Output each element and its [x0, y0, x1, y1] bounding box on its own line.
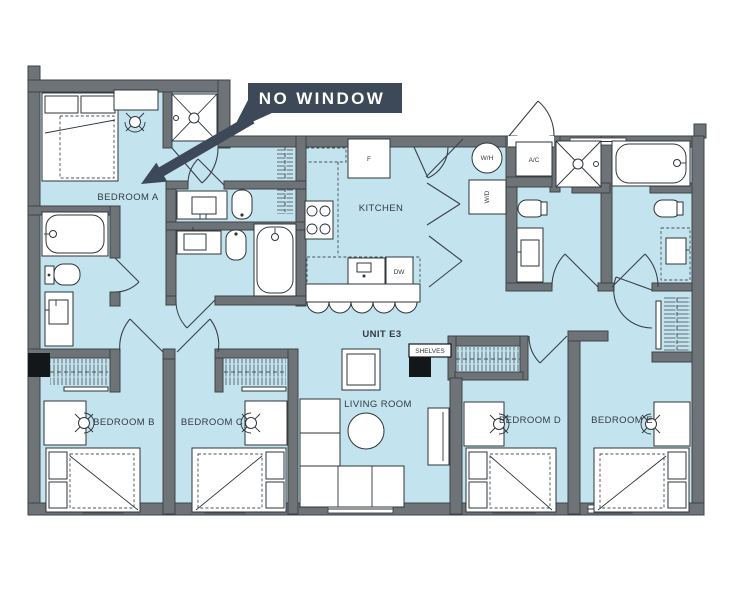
bedroom-a-label: BEDROOM A: [97, 192, 158, 203]
wall-bath-a-east-lower: [110, 292, 120, 306]
wall-bath-d-e-divider: [601, 136, 612, 291]
bed-e: [594, 448, 689, 512]
toilet-mid-lower: [226, 230, 246, 260]
bedroom-c-label: BEDROOM C: [181, 417, 243, 428]
coffee-table: [348, 413, 384, 449]
floor-plan-page: F DW W/H W/D A/C: [0, 0, 740, 592]
wall-closet-c-west: [215, 358, 223, 392]
shelves-label-group: SHELVES: [409, 344, 451, 357]
entry-door: [509, 101, 554, 136]
bed-c: [192, 448, 286, 512]
water-heater-label: W/H: [481, 155, 494, 162]
wall-bc-top: [163, 349, 175, 359]
kitchen-label: KITCHEN: [359, 203, 404, 214]
vanity-d: [517, 228, 543, 282]
wall-closet-d-bottom: [455, 372, 523, 380]
shower-d: [556, 141, 601, 187]
closet-c-shelf: [242, 387, 286, 391]
bed-d: [466, 448, 556, 512]
wall-living-east: [450, 378, 462, 514]
wall-bath-mid-west: [166, 189, 176, 302]
side-table: [342, 349, 380, 390]
wall-closet-d-top: [448, 336, 528, 346]
wall-bath-mid-top-b: [224, 181, 306, 189]
closet-b-shelf: [64, 387, 108, 391]
unit-label: UNIT E3: [362, 329, 401, 340]
wall-closet-c-top: [215, 349, 297, 358]
stove: [305, 201, 333, 239]
bed-a-pillow: [81, 96, 115, 113]
kitchen-sink: [348, 258, 385, 284]
bathtub-e: [612, 141, 690, 186]
wall-closet-e-bottom: [652, 352, 692, 362]
wall-right: [692, 136, 704, 514]
vanity-a: [45, 292, 73, 346]
bar-stools: [307, 302, 417, 313]
kitchen-island: [306, 284, 420, 302]
column-shelves: [409, 357, 431, 377]
dishwasher-label: DW: [394, 269, 406, 276]
floor-plan-drawing: F DW W/H W/D A/C: [0, 0, 740, 592]
toilet-e: [654, 200, 683, 217]
closet-e-shelf: [656, 301, 661, 349]
wall-closet-b-east: [110, 349, 120, 392]
wall-bath-mid-bottom-post: [166, 296, 176, 305]
bedroom-e-label: BEDROOM E: [591, 415, 653, 426]
shower-a: [172, 94, 217, 141]
wall-ac-south: [506, 177, 552, 187]
bedroom-d-label: BEDROOM D: [499, 415, 561, 426]
toilet-mid-upper: [232, 190, 252, 219]
wall-utility-west: [506, 136, 517, 291]
wall-bath-mid-top-a: [166, 181, 188, 189]
bed-b: [46, 448, 140, 512]
toilet-a: [45, 264, 80, 285]
column-left: [28, 353, 50, 377]
bathtub-mid: [254, 224, 296, 296]
wall-bath-de-post: [598, 283, 614, 291]
desk-e: [654, 402, 690, 446]
wall-bath-a-east-upper: [110, 206, 120, 258]
desk-a: [114, 90, 158, 110]
wall-left: [28, 66, 40, 514]
washer-dryer-label: W/D: [484, 190, 491, 203]
wall-between-b-c: [163, 359, 175, 514]
air-conditioner-label: A/C: [529, 157, 540, 164]
bedroom-b-label: BEDROOM B: [93, 417, 155, 428]
wall-bath-d-south: [506, 283, 552, 291]
tv-stand: [428, 408, 449, 465]
bed-a-pillow: [45, 96, 78, 113]
wall-bath-mid-bottom: [215, 296, 306, 305]
wall-bedroom-e-top: [568, 331, 608, 341]
living-room-label: LIVING ROOM: [344, 399, 412, 410]
wall-between-d-e: [568, 341, 580, 514]
fridge-label: F: [367, 156, 371, 163]
wall-living-west: [288, 349, 298, 514]
toilet-d: [518, 200, 547, 217]
bathtub-a: [42, 212, 108, 256]
wall-shower-a-west: [163, 92, 172, 148]
shelves-label: SHELVES: [415, 348, 445, 355]
no-window-label: NO WINDOW: [259, 89, 385, 108]
